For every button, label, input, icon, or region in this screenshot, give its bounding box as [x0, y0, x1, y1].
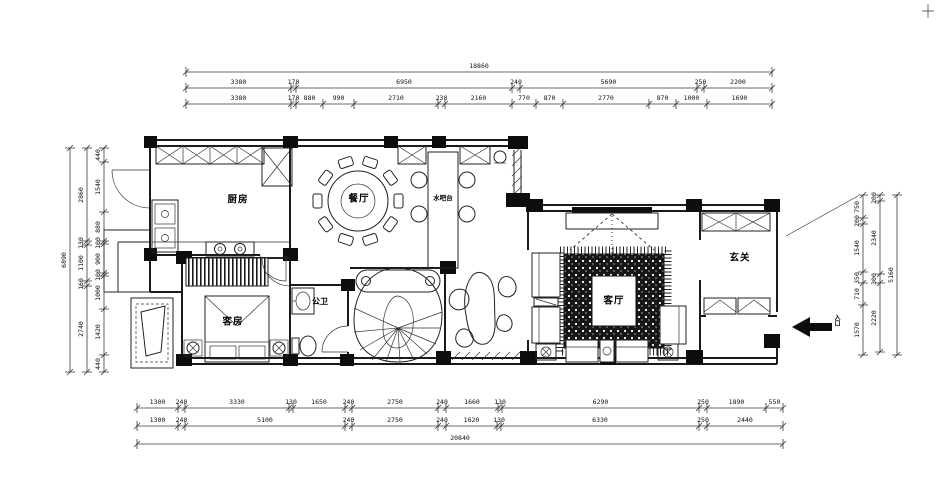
- exterior-steps: [104, 170, 150, 292]
- entry-arrow-icon: [792, 317, 832, 337]
- bath-sink-icon: [292, 288, 314, 314]
- toilet-icon: [292, 336, 316, 356]
- water-bar-counter: [398, 146, 506, 268]
- spiral-staircase: [354, 268, 442, 362]
- dining-table: [313, 156, 403, 246]
- kitchen-sink-icon: [152, 200, 178, 252]
- bed: [205, 296, 269, 362]
- bath-door-arc: [322, 326, 348, 352]
- decorative-rocks: [449, 272, 516, 347]
- planter: [131, 298, 173, 368]
- floor-plan-drawing: [0, 0, 947, 480]
- walls: [150, 140, 858, 364]
- living-carpet: [560, 250, 668, 352]
- double-door: [704, 298, 770, 314]
- wardrobe: [186, 258, 268, 286]
- floor-plan-page: 厨房 餐厅 水吧台 客厅 玄关 客房 公卫 入口 188603380170695…: [0, 0, 947, 480]
- kitchen-cabinets: [156, 146, 264, 164]
- stove-icon: [152, 242, 290, 256]
- fridge-icon: [262, 148, 292, 186]
- foyer-cabinet: [702, 213, 770, 231]
- corner-mark: [922, 4, 934, 18]
